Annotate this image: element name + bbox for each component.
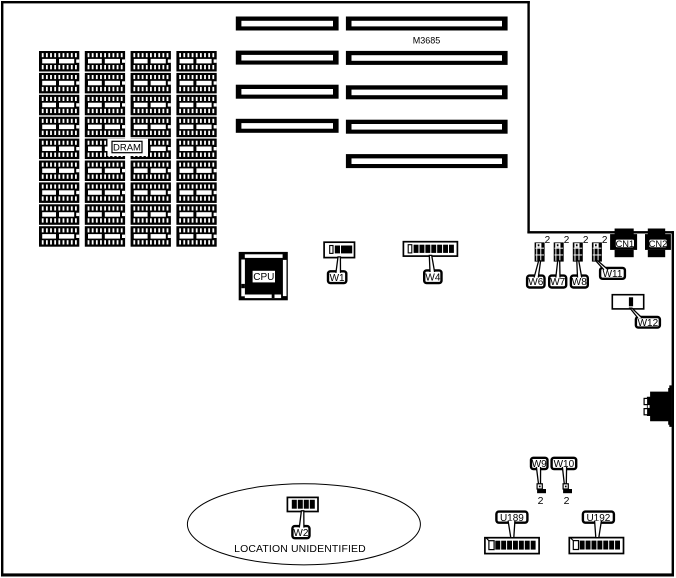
svg-text:2: 2	[545, 235, 551, 246]
svg-text:2: 2	[564, 235, 570, 246]
svg-text:DRAM: DRAM	[113, 143, 141, 154]
svg-text:W11: W11	[603, 269, 623, 280]
svg-text:W12: W12	[638, 318, 659, 329]
svg-text:W2: W2	[293, 528, 308, 539]
svg-text:W4: W4	[425, 272, 440, 283]
svg-text:W6: W6	[528, 277, 543, 288]
svg-text:2: 2	[602, 235, 608, 246]
svg-text:2: 2	[538, 495, 544, 507]
svg-text:CN1: CN1	[616, 239, 635, 249]
svg-text:W7: W7	[550, 277, 565, 288]
svg-text:CN2: CN2	[649, 239, 668, 249]
svg-text:LOCATION UNIDENTIFIED: LOCATION UNIDENTIFIED	[234, 544, 366, 555]
svg-text:W8: W8	[572, 277, 587, 288]
svg-text:W1: W1	[330, 273, 345, 284]
svg-text:CPU: CPU	[253, 272, 274, 283]
svg-text:2: 2	[583, 235, 589, 246]
svg-text:2: 2	[564, 495, 570, 507]
svg-text:M3685: M3685	[413, 36, 441, 46]
